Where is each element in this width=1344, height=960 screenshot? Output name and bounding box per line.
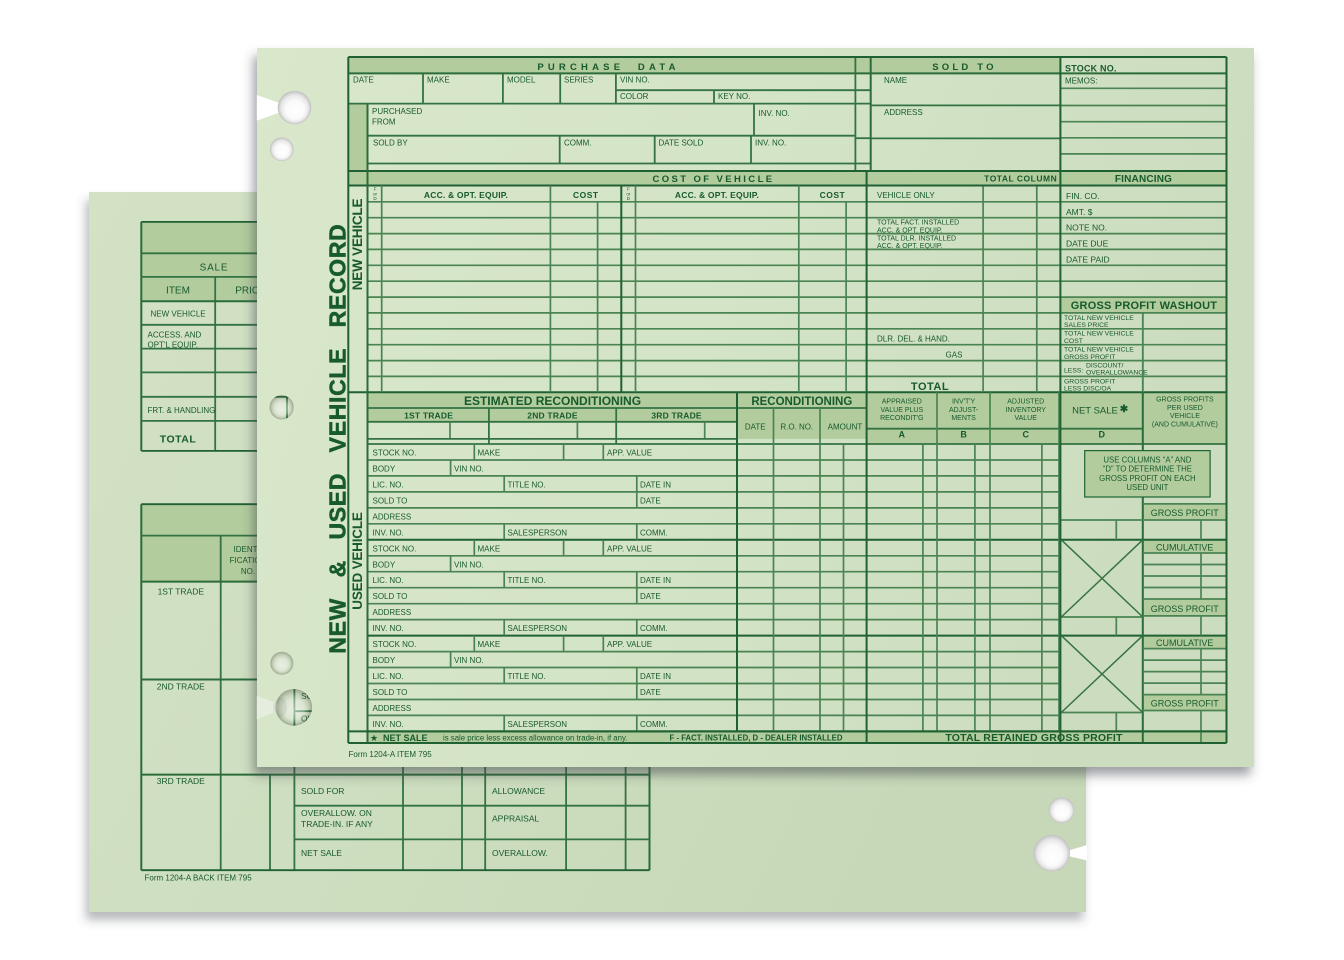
svg-text:INV. NO.: INV. NO. xyxy=(373,720,404,729)
svg-text:COMM.: COMM. xyxy=(640,528,668,537)
svg-text:OVERALLOWANCE: OVERALLOWANCE xyxy=(1086,370,1148,377)
svg-text:STOCK NO.: STOCK NO. xyxy=(1065,64,1117,74)
svg-text:DATE: DATE xyxy=(640,688,661,697)
svg-text:SOLD BY: SOLD BY xyxy=(373,139,408,148)
svg-text:COLOR: COLOR xyxy=(620,92,649,101)
svg-text:AMOUNT: AMOUNT xyxy=(828,423,863,432)
svg-text:GROSS PROFITS: GROSS PROFITS xyxy=(1156,397,1214,404)
svg-text:TOTAL: TOTAL xyxy=(160,434,197,446)
svg-text:INV. NO.: INV. NO. xyxy=(755,139,786,148)
svg-text:NEW VEHICLE: NEW VEHICLE xyxy=(350,199,365,291)
svg-text:LIC. NO.: LIC. NO. xyxy=(373,672,404,681)
svg-text:BODY: BODY xyxy=(373,560,396,569)
svg-text:TITLE NO.: TITLE NO. xyxy=(508,480,546,489)
svg-text:TITLE NO.: TITLE NO. xyxy=(508,672,546,681)
svg-text:TITLE NO.: TITLE NO. xyxy=(508,576,546,585)
svg-text:LIC. NO.: LIC. NO. xyxy=(373,480,404,489)
svg-text:1ST TRADE: 1ST TRADE xyxy=(158,587,205,597)
svg-text:DATE IN: DATE IN xyxy=(640,480,671,489)
svg-text:VALUE: VALUE xyxy=(1014,415,1037,422)
svg-text:C: C xyxy=(1022,430,1029,440)
svg-text:D: D xyxy=(1098,430,1105,440)
svg-text:STOCK NO.: STOCK NO. xyxy=(373,640,417,649)
svg-text:APP. VALUE: APP. VALUE xyxy=(607,449,652,458)
svg-text:SALESPERSON: SALESPERSON xyxy=(508,624,568,633)
svg-text:SALESPERSON: SALESPERSON xyxy=(508,720,568,729)
svg-text:COST OF VEHICLE: COST OF VEHICLE xyxy=(652,174,774,185)
svg-text:VALUE PLUS: VALUE PLUS xyxy=(880,407,923,414)
svg-text:MAKE: MAKE xyxy=(427,76,450,85)
svg-text:DATE SOLD: DATE SOLD xyxy=(659,139,704,148)
svg-text:MAKE: MAKE xyxy=(478,544,501,553)
svg-text:B: B xyxy=(960,430,967,440)
svg-text:INV'T'Y: INV'T'Y xyxy=(952,399,976,406)
svg-text:SALES PRICE: SALES PRICE xyxy=(1064,322,1109,329)
svg-text:DATE IN: DATE IN xyxy=(640,576,671,585)
svg-text:INV. NO.: INV. NO. xyxy=(373,528,404,537)
svg-text:R.O. NO.: R.O. NO. xyxy=(780,423,813,432)
svg-text:Form 1204-A ITEM 795: Form 1204-A ITEM 795 xyxy=(349,750,433,759)
svg-text:TOTAL RETAINED GROSS PROFIT: TOTAL RETAINED GROSS PROFIT xyxy=(945,732,1123,744)
svg-text:USE COLUMNS “A” AND: USE COLUMNS “A” AND xyxy=(1103,456,1191,465)
svg-text:ACC. & OPT. EQUIP.: ACC. & OPT. EQUIP. xyxy=(877,227,943,234)
svg-text:DATE IN: DATE IN xyxy=(640,672,671,681)
svg-text:SALESPERSON: SALESPERSON xyxy=(508,528,568,537)
svg-text:is sale price less excess allo: is sale price less excess allowance on t… xyxy=(443,734,627,743)
svg-text:(AND CUMULATIVE): (AND CUMULATIVE) xyxy=(1152,421,1218,428)
svg-text:INV. NO.: INV. NO. xyxy=(373,624,404,633)
svg-text:COST: COST xyxy=(573,190,599,200)
svg-text:ADDRESS: ADDRESS xyxy=(373,608,412,617)
svg-text:ACC. & OPT. EQUIP.: ACC. & OPT. EQUIP. xyxy=(424,190,508,200)
svg-text:DISCOUNT/: DISCOUNT/ xyxy=(1086,363,1123,370)
svg-text:VIN NO.: VIN NO. xyxy=(454,656,484,665)
svg-text:ADJUST-: ADJUST- xyxy=(949,407,979,414)
svg-text:NEW & USED VEHICLE RECORD: NEW & USED VEHICLE RECORD xyxy=(325,224,351,654)
svg-text:INVENTORY: INVENTORY xyxy=(1005,407,1046,414)
svg-text:FIN. CO.: FIN. CO. xyxy=(1066,191,1100,201)
svg-text:ACC. & OPT. EQUIP.: ACC. & OPT. EQUIP. xyxy=(877,243,943,250)
svg-text:GROSS PROFIT ON EACH: GROSS PROFIT ON EACH xyxy=(1099,474,1195,483)
svg-text:KEY NO.: KEY NO. xyxy=(718,92,750,101)
svg-text:NOTE NO.: NOTE NO. xyxy=(1066,223,1107,233)
svg-text:FINANCING: FINANCING xyxy=(1115,174,1172,185)
svg-text:★: ★ xyxy=(370,733,378,743)
svg-text:TOTAL NEW VEHICLE: TOTAL NEW VEHICLE xyxy=(1064,347,1134,354)
svg-text:NET SALE: NET SALE xyxy=(1072,406,1118,417)
svg-text:DATE DUE: DATE DUE xyxy=(1066,239,1109,249)
svg-text:MAKE: MAKE xyxy=(478,449,501,458)
svg-text:TOTAL NEW VEHICLE: TOTAL NEW VEHICLE xyxy=(1064,315,1134,322)
svg-text:MEMOS:: MEMOS: xyxy=(1065,77,1097,86)
svg-text:USED UNIT: USED UNIT xyxy=(1126,483,1168,492)
svg-text:DLR. DEL. & HAND.: DLR. DEL. & HAND. xyxy=(877,335,950,344)
svg-text:FROM: FROM xyxy=(372,118,396,127)
svg-text:NO.: NO. xyxy=(241,567,255,576)
svg-text:OVERALLOW. ON: OVERALLOW. ON xyxy=(301,808,372,818)
svg-text:VIN NO.: VIN NO. xyxy=(454,465,484,474)
svg-text:USED VEHICLE: USED VEHICLE xyxy=(350,512,365,610)
svg-text:OPT'L EQUIP.: OPT'L EQUIP. xyxy=(148,341,198,350)
svg-text:GROSS PROFIT: GROSS PROFIT xyxy=(1151,699,1220,709)
svg-text:GROSS PROFIT: GROSS PROFIT xyxy=(1064,354,1115,361)
svg-text:ADJUSTED: ADJUSTED xyxy=(1007,399,1044,406)
svg-text:F - FACT. INSTALLED, D - DEALE: F - FACT. INSTALLED, D - DEALER INSTALLE… xyxy=(670,734,843,743)
svg-text:TRADE-IN. IF ANY: TRADE-IN. IF ANY xyxy=(301,819,373,829)
svg-text:SOLD TO: SOLD TO xyxy=(373,592,408,601)
svg-text:COST: COST xyxy=(1064,338,1083,345)
svg-text:BODY: BODY xyxy=(373,465,396,474)
svg-text:SOLD FOR: SOLD FOR xyxy=(301,786,344,796)
svg-text:ESTIMATED RECONDITIONING: ESTIMATED RECONDITIONING xyxy=(464,394,641,408)
svg-text:VEHICLE: VEHICLE xyxy=(1170,413,1200,420)
svg-text:VIN NO.: VIN NO. xyxy=(454,560,484,569)
svg-text:GROSS PROFIT: GROSS PROFIT xyxy=(1064,378,1115,385)
svg-text:DATE: DATE xyxy=(640,496,661,505)
svg-text:DATE: DATE xyxy=(640,592,661,601)
svg-text:✱: ✱ xyxy=(1120,404,1129,415)
svg-text:INV. NO.: INV. NO. xyxy=(759,109,790,118)
svg-text:LIC. NO.: LIC. NO. xyxy=(373,576,404,585)
svg-text:ITEM: ITEM xyxy=(166,286,190,297)
svg-text:OVERALLOW.: OVERALLOW. xyxy=(492,848,548,858)
svg-text:2ND TRADE: 2ND TRADE xyxy=(527,411,578,421)
svg-text:SOLD TO: SOLD TO xyxy=(373,496,408,505)
svg-text:DATE: DATE xyxy=(745,423,766,432)
svg-text:1ST TRADE: 1ST TRADE xyxy=(404,411,453,421)
svg-text:MODEL: MODEL xyxy=(507,76,536,85)
svg-text:ACCESS. AND: ACCESS. AND xyxy=(148,331,202,340)
svg-text:SOLD TO: SOLD TO xyxy=(373,688,408,697)
svg-text:GROSS PROFIT WASHOUT: GROSS PROFIT WASHOUT xyxy=(1071,300,1217,312)
svg-text:GAS: GAS xyxy=(946,351,963,360)
svg-text:COMM.: COMM. xyxy=(640,624,668,633)
svg-text:TOTAL FACT. INSTALLED: TOTAL FACT. INSTALLED xyxy=(877,220,959,227)
svg-text:A: A xyxy=(899,430,906,440)
svg-text:TOTAL COLUMN: TOTAL COLUMN xyxy=(984,174,1057,184)
svg-text:FRT. & HANDLING: FRT. & HANDLING xyxy=(148,406,216,415)
svg-text:NEW VEHICLE: NEW VEHICLE xyxy=(151,310,206,319)
svg-text:Form 1204-A BACK ITEM 795: Form 1204-A BACK ITEM 795 xyxy=(145,874,253,883)
svg-text:DATE: DATE xyxy=(353,76,374,85)
svg-text:TOTAL: TOTAL xyxy=(911,381,949,393)
svg-text:CUMULATIVE: CUMULATIVE xyxy=(1156,542,1213,552)
svg-text:“D” TO DETERMINE THE: “D” TO DETERMINE THE xyxy=(1103,465,1192,474)
svg-text:SOLD TO: SOLD TO xyxy=(932,62,996,73)
svg-text:ADDRESS: ADDRESS xyxy=(373,704,412,713)
svg-text:RECONDITIONING: RECONDITIONING xyxy=(751,396,852,408)
svg-text:TOTAL DLR. INSTALLED: TOTAL DLR. INSTALLED xyxy=(877,235,956,242)
svg-text:TOTAL NEW VEHICLE: TOTAL NEW VEHICLE xyxy=(1064,331,1134,338)
svg-text:BODY: BODY xyxy=(373,656,396,665)
svg-text:SALE: SALE xyxy=(200,263,229,274)
svg-text:STOCK NO.: STOCK NO. xyxy=(373,449,417,458)
svg-text:COST: COST xyxy=(820,190,846,200)
svg-text:PURCHASE DATA: PURCHASE DATA xyxy=(537,62,679,73)
svg-text:PURCHASED: PURCHASED xyxy=(372,107,422,116)
svg-text:COMM.: COMM. xyxy=(564,139,592,148)
svg-text:2ND TRADE: 2ND TRADE xyxy=(157,682,205,692)
svg-text:APP. VALUE: APP. VALUE xyxy=(607,544,652,553)
svg-text:GROSS PROFIT: GROSS PROFIT xyxy=(1151,604,1220,614)
svg-text:MAKE: MAKE xyxy=(478,640,501,649)
svg-text:3RD TRADE: 3RD TRADE xyxy=(157,776,205,786)
svg-text:APP. VALUE: APP. VALUE xyxy=(607,640,652,649)
svg-text:CUMULATIVE: CUMULATIVE xyxy=(1156,638,1213,648)
svg-text:RECONDIT'G: RECONDIT'G xyxy=(880,415,923,422)
svg-text:ALLOWANCE: ALLOWANCE xyxy=(492,786,545,796)
svg-text:NET SALE: NET SALE xyxy=(301,848,342,858)
svg-text:LESS DISC/OA: LESS DISC/OA xyxy=(1064,386,1112,393)
svg-text:VEHICLE ONLY: VEHICLE ONLY xyxy=(877,191,935,200)
svg-text:MENTS: MENTS xyxy=(951,415,976,422)
svg-text:DATE PAID: DATE PAID xyxy=(1066,254,1110,264)
svg-text:GROSS PROFIT: GROSS PROFIT xyxy=(1151,508,1220,518)
svg-text:NAME: NAME xyxy=(884,76,907,85)
svg-text:NET SALE: NET SALE xyxy=(383,733,428,743)
svg-text:AMT. $: AMT. $ xyxy=(1066,207,1093,217)
svg-text:PER USED: PER USED xyxy=(1167,405,1203,412)
svg-text:3RD TRADE: 3RD TRADE xyxy=(651,411,702,421)
svg-text:COMM.: COMM. xyxy=(640,720,668,729)
svg-text:ADDRESS: ADDRESS xyxy=(884,108,923,117)
svg-text:ADDRESS: ADDRESS xyxy=(373,512,412,521)
svg-text:ACC. & OPT. EQUIP.: ACC. & OPT. EQUIP. xyxy=(675,190,759,200)
svg-text:APPRAISAL: APPRAISAL xyxy=(492,814,540,824)
svg-text:LESS:: LESS: xyxy=(1064,368,1083,375)
svg-text:APPRAISED: APPRAISED xyxy=(882,399,922,406)
svg-text:VIN NO.: VIN NO. xyxy=(620,76,650,85)
svg-text:SERIES: SERIES xyxy=(564,76,593,85)
svg-text:STOCK NO.: STOCK NO. xyxy=(373,544,417,553)
